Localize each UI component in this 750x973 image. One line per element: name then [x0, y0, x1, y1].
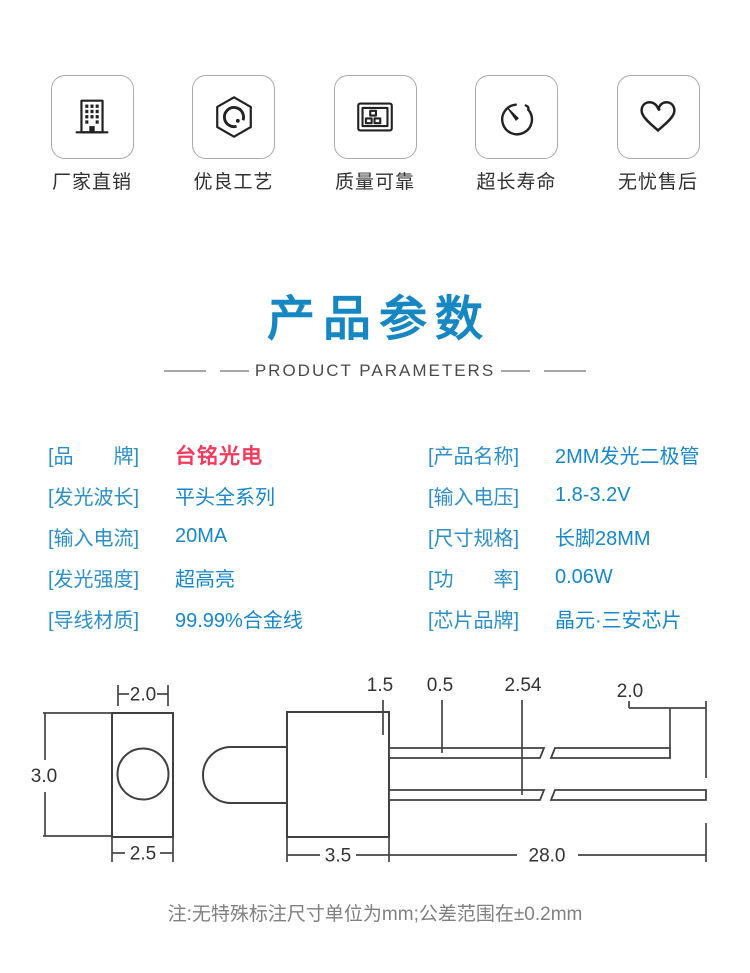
param-row-product-name: [产品名称] 2MM发光二极管: [428, 434, 750, 475]
tolerance-note: 注:无特殊标注尺寸单位为mm;公差范围在±0.2mm: [0, 904, 750, 926]
dim-lead-end-offset: 2.0: [617, 681, 643, 702]
dim-front-top-width: 2.0: [130, 685, 156, 706]
param-value: 超高亮: [175, 563, 235, 592]
feature-label: 厂家直销: [28, 172, 156, 194]
page-subtitle: PRODUCT PARAMETERS: [255, 360, 495, 382]
param-value: 20MA: [175, 525, 227, 548]
param-row-power: [功 率] 0.06W: [428, 557, 750, 598]
param-value: 平头全系列: [175, 481, 275, 510]
led-dimension-diagram: 2.0 3.0 2.5 1.5 0.5 2.54 2.0 3.5 28.0: [0, 655, 750, 880]
feature-factory-direct: 厂家直销: [28, 75, 156, 194]
page-subtitle-row: PRODUCT PARAMETERS: [0, 360, 750, 382]
dim-front-height: 3.0: [31, 766, 57, 787]
certificate-icon: [334, 75, 417, 159]
param-row-brand: [品 牌] 台铭光电: [48, 434, 428, 475]
param-label: [尺寸规格]: [428, 522, 555, 551]
led-dome-outline: [203, 747, 287, 803]
parameters-table: [品 牌] 台铭光电 [发光波长] 平头全系列 [输入电流] 20MA [发光强…: [0, 434, 750, 639]
dim-lead-pitch: 2.54: [505, 675, 542, 696]
divider-dash: [220, 370, 249, 372]
param-label: [发光波长]: [48, 481, 175, 510]
divider-dash: [501, 370, 530, 372]
param-row-chip-brand: [芯片品牌] 晶元·三安芯片: [428, 598, 750, 639]
param-label: [导线材质]: [48, 604, 175, 633]
param-row-wavelength: [发光波长] 平头全系列: [48, 475, 428, 516]
param-value-brand: 台铭光电: [175, 440, 263, 470]
heart-icon: [617, 75, 700, 159]
led-leads: [389, 748, 706, 800]
param-label: [发光强度]: [48, 563, 175, 592]
param-row-wire-material: [导线材质] 99.99%合金线: [48, 598, 428, 639]
param-row-intensity: [发光强度] 超高亮: [48, 557, 428, 598]
feature-long-life: 超长寿命: [453, 75, 581, 194]
param-label: [产品名称]: [428, 440, 555, 469]
parameters-left-column: [品 牌] 台铭光电 [发光波长] 平头全系列 [输入电流] 20MA [发光强…: [48, 434, 428, 639]
param-value: 晶元·三安芯片: [555, 604, 682, 633]
dim-lead-thickness: 0.5: [427, 675, 453, 696]
param-row-voltage: [输入电压] 1.8-3.2V: [428, 475, 750, 516]
feature-label: 质量可靠: [311, 172, 439, 194]
dim-lead-length: 28.0: [529, 846, 566, 867]
param-value: 99.99%合金线: [175, 604, 303, 633]
craft-badge-icon: [192, 75, 275, 159]
feature-label: 优良工艺: [170, 172, 298, 194]
dim-body-length: 3.5: [325, 846, 351, 867]
divider-dash: [544, 370, 586, 372]
feature-label: 无忧售后: [594, 172, 722, 194]
param-value: 长脚28MM: [555, 522, 651, 551]
param-value: 2MM发光二极管: [555, 440, 699, 469]
building-icon: [51, 75, 134, 159]
dim-flange: 1.5: [367, 675, 393, 696]
feature-fine-craft: 优良工艺: [170, 75, 298, 194]
feature-label: 超长寿命: [453, 172, 581, 194]
param-value: 1.8-3.2V: [555, 484, 631, 507]
feature-after-sales: 无忧售后: [594, 75, 722, 194]
dim-front-bottom-width: 2.5: [130, 844, 156, 865]
param-label: [输入电流]: [48, 522, 175, 551]
feature-row: 厂家直销 优良工艺 质量可靠: [0, 0, 750, 194]
param-label: [输入电压]: [428, 481, 555, 510]
param-row-current: [输入电流] 20MA: [48, 516, 428, 557]
led-body-outline: [287, 712, 389, 837]
led-front-outline: [112, 713, 173, 837]
product-parameters-page: 厂家直销 优良工艺 质量可靠: [0, 0, 750, 973]
param-row-size: [尺寸规格] 长脚28MM: [428, 516, 750, 557]
parameters-right-column: [产品名称] 2MM发光二极管 [输入电压] 1.8-3.2V [尺寸规格] 长…: [428, 434, 750, 639]
param-label: [功 率]: [428, 563, 555, 592]
param-label: [品 牌]: [48, 440, 175, 469]
divider-dash: [164, 370, 206, 372]
page-title: 产品参数: [0, 294, 750, 346]
param-value: 0.06W: [555, 566, 613, 589]
timer-icon: [475, 75, 558, 159]
param-label: [芯片品牌]: [428, 604, 555, 633]
feature-reliable-quality: 质量可靠: [311, 75, 439, 194]
